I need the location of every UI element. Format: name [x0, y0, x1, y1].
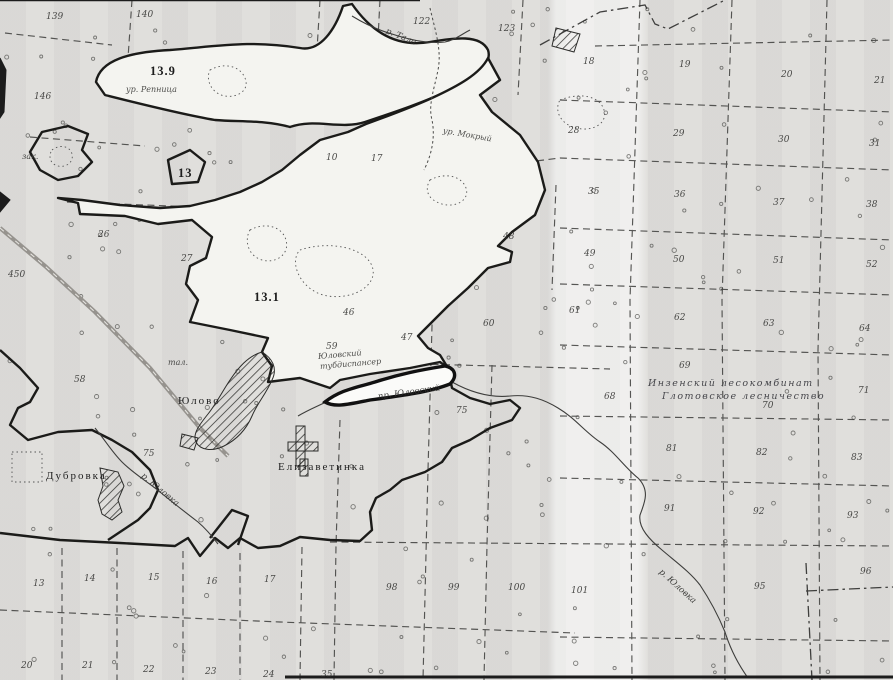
pond-inlet	[298, 402, 326, 416]
quarter-13-polygon	[168, 150, 205, 184]
corner-hatch	[552, 28, 580, 52]
forest-boundary	[0, 4, 545, 556]
yulovo-settlement-hatch	[195, 352, 274, 449]
zakaznik-polygon	[30, 126, 92, 180]
scanned-forestry-map: Инзенский лесокомбинат Глотовское леснич…	[0, 0, 893, 680]
dubrovka-settlement-hatch	[98, 468, 124, 520]
admin-boundary-lines	[540, 0, 893, 680]
road-line	[0, 228, 228, 456]
map-drawing	[0, 0, 893, 680]
southwest-boundary	[0, 350, 158, 540]
elizavetinka-hatch-3	[300, 459, 308, 476]
elizavetinka-hatch-2	[288, 442, 318, 451]
